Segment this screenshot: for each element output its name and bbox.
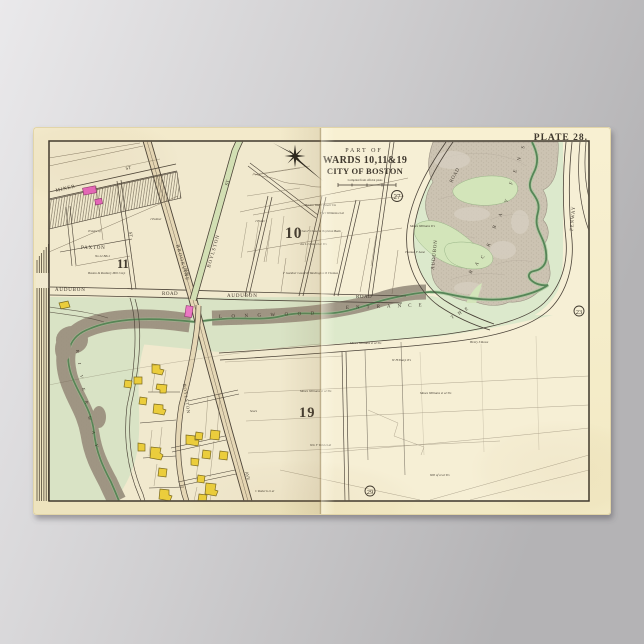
svg-text:W H Sharp Trs: W H Sharp Trs <box>392 358 412 362</box>
svg-text:CITY OF BOSTON: CITY OF BOSTON <box>327 166 404 176</box>
svg-text:PART OF: PART OF <box>345 148 383 154</box>
svg-text:Moses Williams et al Trs: Moses Williams et al Trs <box>419 391 452 395</box>
svg-text:Will of et al Trs: Will of et al Trs <box>430 473 450 477</box>
svg-text:Thomas F Lane: Thomas F Lane <box>405 250 426 254</box>
svg-text:Moses Williams Trs: Moses Williams Trs <box>409 224 436 228</box>
svg-text:WARDS 10,11&19: WARDS 10,11&19 <box>323 155 408 166</box>
svg-text:ROAD: ROAD <box>356 295 372 300</box>
svg-text:27: 27 <box>394 193 402 201</box>
svg-text:Compiled from official plans: Compiled from official plans <box>348 178 384 182</box>
svg-text:23: 23 <box>576 309 583 316</box>
svg-text:Moses Williams et al Trs: Moses Williams et al Trs <box>349 341 382 345</box>
svg-text:Henry S Rowe: Henry S Rowe <box>469 340 489 344</box>
